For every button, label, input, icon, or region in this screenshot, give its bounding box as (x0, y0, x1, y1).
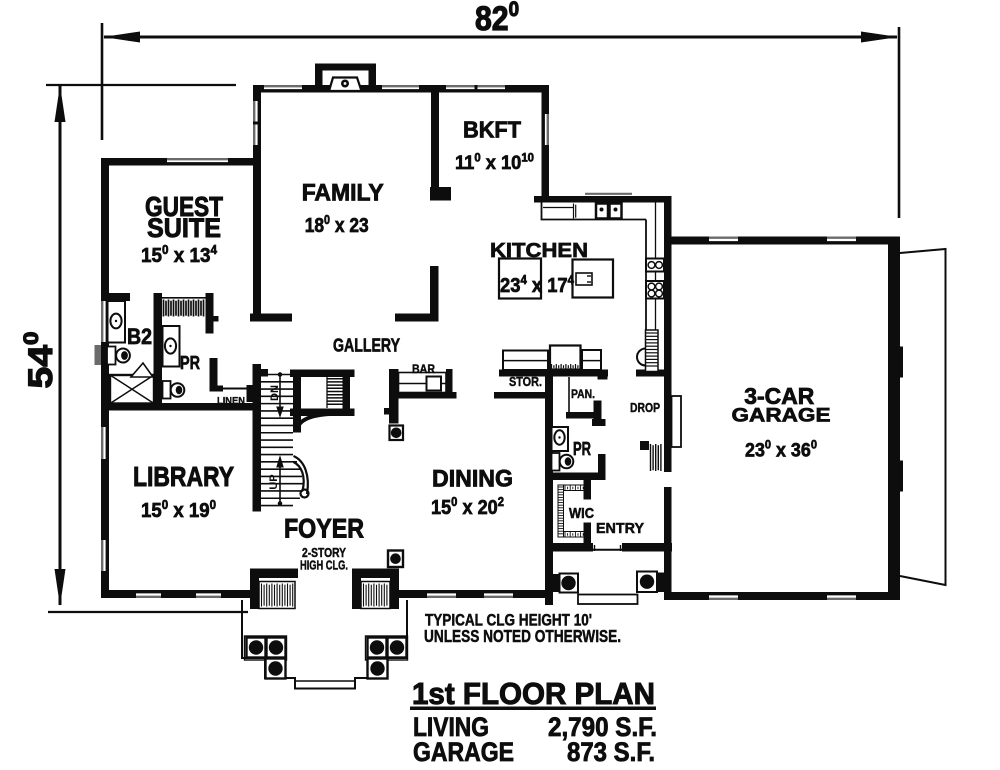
svg-text:DN: DN (269, 385, 281, 401)
svg-text:FAMILY: FAMILY (302, 180, 384, 207)
svg-text:BKFT: BKFT (463, 117, 522, 143)
svg-text:230​ x 360​: 230​ x 360​ (745, 438, 817, 462)
svg-text:HIGH CLG.: HIGH CLG. (300, 559, 348, 573)
svg-text:GALLERY: GALLERY (333, 336, 400, 356)
svg-text:GARAGE: GARAGE (413, 737, 514, 767)
svg-text:FOYER: FOYER (284, 514, 364, 544)
svg-text:DROP: DROP (630, 401, 660, 415)
svg-text:PAN.: PAN. (571, 387, 595, 401)
svg-text:STOR.: STOR. (509, 374, 542, 389)
svg-text:DINING: DINING (432, 467, 513, 493)
svg-text:873 S.F.: 873 S.F. (567, 737, 655, 767)
svg-text:ENTRY: ENTRY (596, 520, 644, 537)
svg-text:BAR: BAR (412, 362, 435, 376)
svg-text:GARAGE: GARAGE (732, 405, 831, 426)
svg-text:B2: B2 (127, 324, 152, 349)
svg-text:KITCHEN: KITCHEN (490, 240, 588, 262)
svg-text:UNLESS NOTED OTHERWISE.: UNLESS NOTED OTHERWISE. (424, 626, 621, 646)
svg-text:LINEN: LINEN (217, 395, 245, 407)
svg-text:234​ x 174​: 234​ x 174​ (500, 273, 574, 297)
svg-text:150​ x 202​: 150​ x 202​ (431, 495, 504, 519)
svg-text:150​ x 134​: 150​ x 134​ (141, 243, 217, 267)
svg-text:180​ x 23: 180​ x 23 (305, 213, 369, 237)
svg-text:LIBRARY: LIBRARY (133, 461, 234, 492)
svg-text:1st FLOOR PLAN: 1st FLOOR PLAN (412, 677, 655, 711)
svg-text:UP: UP (268, 474, 280, 489)
svg-text:PR: PR (180, 353, 200, 373)
svg-text:SUITE: SUITE (147, 213, 221, 243)
svg-text:150​ x 190​: 150​ x 190​ (141, 498, 216, 522)
svg-text:WIC: WIC (569, 505, 594, 522)
svg-text:PR: PR (573, 439, 591, 459)
